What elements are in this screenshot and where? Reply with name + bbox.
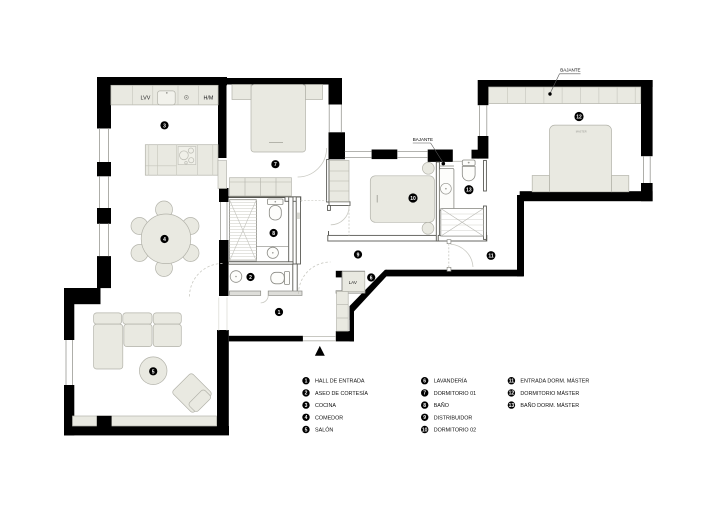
svg-text:4: 4 <box>305 415 308 421</box>
svg-text:5: 5 <box>152 369 155 375</box>
svg-text:1: 1 <box>278 310 281 316</box>
svg-text:12: 12 <box>509 391 515 397</box>
svg-text:8: 8 <box>272 231 275 237</box>
svg-text:H/M: H/M <box>203 96 213 102</box>
svg-text:13: 13 <box>466 188 472 194</box>
svg-text:11: 11 <box>488 254 494 260</box>
svg-text:COMEDOR: COMEDOR <box>315 415 343 421</box>
svg-text:DORMITORIO 01: DORMITORIO 01 <box>434 391 476 397</box>
svg-text:3: 3 <box>305 403 308 409</box>
svg-text:5: 5 <box>305 427 308 433</box>
svg-text:LVV: LVV <box>141 96 151 102</box>
svg-text:7: 7 <box>274 162 277 168</box>
svg-text:MASTER: MASTER <box>576 129 587 133</box>
svg-text:2: 2 <box>249 275 252 281</box>
svg-text:10: 10 <box>410 196 416 202</box>
svg-text:DISTRIBUIDOR: DISTRIBUIDOR <box>434 415 473 421</box>
svg-text:ASEO DE CORTESÍA: ASEO DE CORTESÍA <box>315 390 368 397</box>
svg-text:BAÑO DORM. MÁSTER: BAÑO DORM. MÁSTER <box>520 402 579 409</box>
svg-text:12: 12 <box>576 115 582 121</box>
svg-text:6: 6 <box>423 379 426 385</box>
svg-text:DORMITORIO 02: DORMITORIO 02 <box>434 428 476 434</box>
svg-text:LAVANDERÍA: LAVANDERÍA <box>434 378 468 385</box>
svg-text:COCINA: COCINA <box>315 403 336 409</box>
svg-text:11: 11 <box>509 379 515 385</box>
svg-text:2: 2 <box>305 391 308 397</box>
svg-text:BAJANTE: BAJANTE <box>413 137 433 142</box>
svg-text:1: 1 <box>305 379 308 385</box>
svg-text:6: 6 <box>370 276 373 282</box>
svg-text:LAV: LAV <box>349 280 358 285</box>
svg-text:9: 9 <box>357 253 360 259</box>
svg-text:SALÓN: SALÓN <box>315 427 333 434</box>
svg-text:HALL DE ENTRADA: HALL DE ENTRADA <box>315 379 365 385</box>
svg-text:8: 8 <box>423 403 426 409</box>
svg-text:ENTRADA DORM. MÁSTER: ENTRADA DORM. MÁSTER <box>520 378 589 385</box>
svg-text:3: 3 <box>163 123 166 129</box>
svg-text:9: 9 <box>423 415 426 421</box>
svg-text:13: 13 <box>509 403 515 409</box>
svg-text:10: 10 <box>422 427 428 433</box>
svg-text:BAJANTE: BAJANTE <box>560 68 580 73</box>
svg-text:7: 7 <box>423 391 426 397</box>
svg-text:4: 4 <box>163 237 166 243</box>
svg-text:BAÑO: BAÑO <box>434 402 449 409</box>
svg-text:DORMITORIO MÁSTER: DORMITORIO MÁSTER <box>520 390 579 397</box>
